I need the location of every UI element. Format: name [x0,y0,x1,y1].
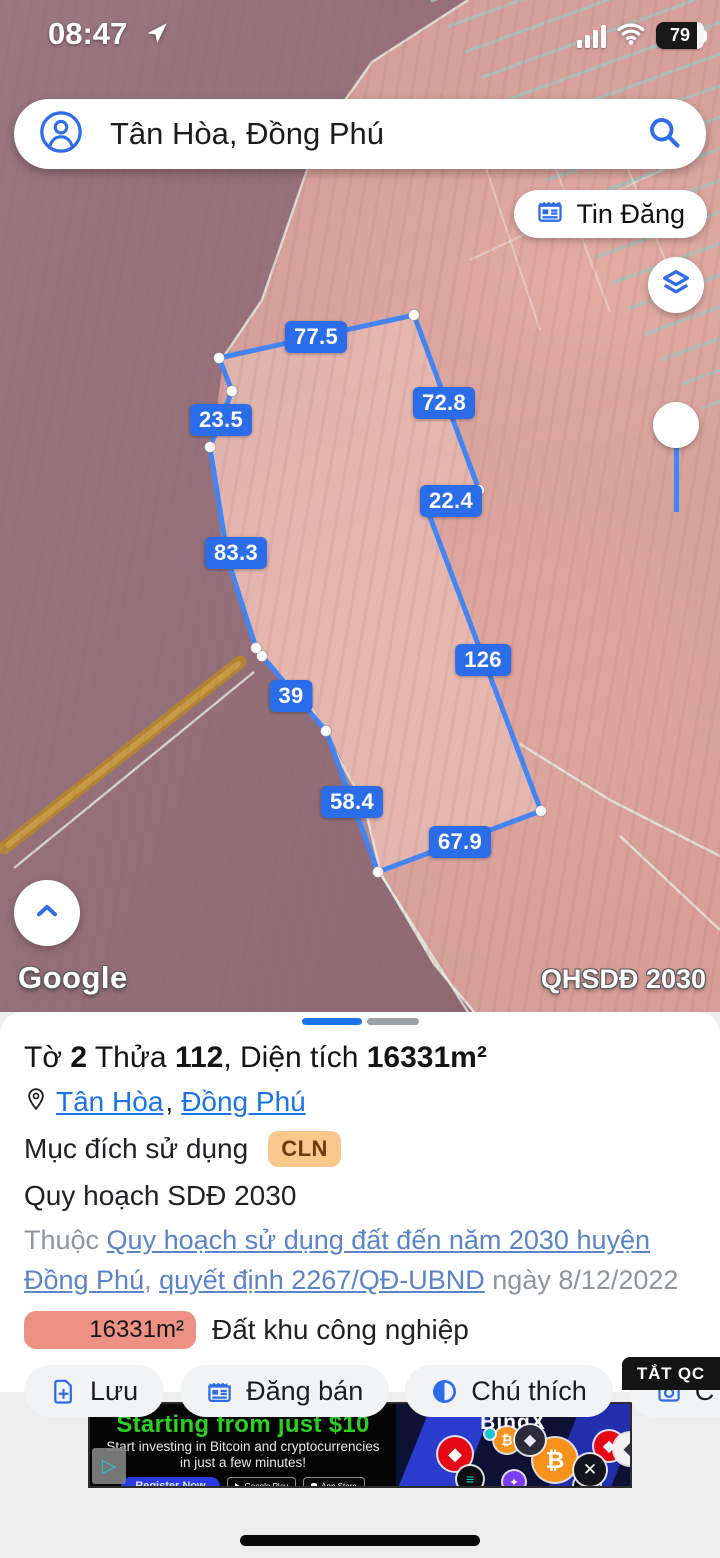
play-store-icon [235,1483,241,1489]
edge-length-label: 126 [455,644,511,676]
belongs-prefix: Thuộc [24,1225,107,1255]
battery-icon: 79 [656,22,704,49]
district-link[interactable]: Đồng Phú [181,1086,306,1118]
home-indicator[interactable] [240,1535,480,1546]
parcel-vertex-dot[interactable] [227,386,238,397]
edge-length-label: 83.3 [205,537,267,569]
crypto-coin-icon: ✕ [574,1454,606,1486]
plan-reference-paragraph: Thuộc Quy hoạch sử dụng đất đến năm 2030… [24,1220,696,1300]
parcel-vertex-dot[interactable] [251,643,262,654]
map-drag-handle[interactable] [653,402,699,448]
pager-dot-inactive[interactable] [367,1018,419,1025]
edge-length-label: 72.8 [413,387,475,419]
ad-subline-2: in just a few minutes! [90,1455,396,1471]
action-button-label: Lưu [90,1376,138,1407]
crypto-coin-icon: ≡ [457,1466,483,1488]
zoning-area-badge: 16331m² [24,1311,196,1349]
map-pin-icon [24,1086,48,1118]
action-button-contrast[interactable]: Chú thích [405,1365,613,1417]
parcel-title-part: 112 [175,1041,223,1074]
edge-length-label: 22.4 [420,485,482,517]
google-logo: Google [18,960,128,996]
search-bar[interactable]: Tân Hòa, Đồng Phú [14,99,706,169]
contrast-icon [431,1378,458,1405]
parcel-title-part: Thửa [87,1041,175,1074]
action-button-label: Chú thích [471,1376,587,1407]
parcel-location-row: Tân Hòa, Đồng Phú [24,1086,720,1118]
file-plus-icon [50,1378,77,1405]
dismiss-ad-button[interactable]: TẮT QC [622,1357,720,1390]
edge-length-label: 58.4 [321,786,383,818]
edge-length-label: 39 [269,680,312,712]
listings-button[interactable]: Tin Đăng [514,190,707,238]
parcel-info-sheet: Tờ 2 Thửa 112, Diện tích 16331m² Tân Hòa… [0,1012,720,1392]
search-input[interactable]: Tân Hòa, Đồng Phú [110,116,646,152]
satellite-map[interactable]: 08:47 79 [0,0,720,1012]
search-icon[interactable] [646,114,682,155]
plan-label: Quy hoạch SDĐ 2030 [24,1180,720,1212]
belongs-suffix: ngày 8/12/2022 [485,1265,679,1295]
zoning-row: 16331m² Đất khu công nghiệp [24,1311,720,1349]
land-purpose-label: Mục đích sử dụng [24,1133,248,1165]
ad-register-button[interactable]: Register Now [121,1477,219,1488]
action-button-file-plus[interactable]: Lưu [24,1365,164,1417]
google-play-badge[interactable]: Google Play [227,1477,297,1488]
collapse-panel-button[interactable] [14,880,80,946]
parcel-title-part: Tờ [24,1041,70,1074]
layers-icon [659,266,693,305]
edge-length-label: 67.9 [429,826,491,858]
edge-length-label: 23.5 [190,404,252,436]
parcel-vertex-dot[interactable] [409,310,420,321]
action-button-listing[interactable]: Đăng bán [180,1365,389,1417]
listing-icon [536,197,564,232]
app-store-badge[interactable]: App Store [303,1477,365,1488]
parcel-title-part: 2 [70,1041,87,1074]
ad-subline-1: Start investing in Bitcoin and cryptocur… [90,1439,396,1455]
action-button-row: LưuĐăng bánChú thíchC [24,1365,720,1417]
account-icon[interactable] [38,109,84,160]
map-layers-button[interactable] [648,257,704,313]
parcel-vertex-dot[interactable] [205,442,216,453]
crypto-coin-icon: ◆ [515,1425,545,1455]
map-overlay-label: QHSDĐ 2030 [541,964,706,995]
listings-button-label: Tin Đăng [576,199,685,230]
listing-icon [206,1378,233,1405]
sheet-pager [0,1012,720,1025]
action-button-label: Đăng bán [246,1376,363,1407]
parcel-title-part: , Diện tích [223,1041,366,1074]
belongs-mid: , [144,1265,159,1295]
edge-length-label: 77.5 [285,321,347,353]
zoning-type-label: Đất khu công nghiệp [212,1314,469,1346]
commune-link[interactable]: Tân Hòa [56,1086,163,1118]
clock: 08:47 [48,16,127,52]
status-bar: 08:47 79 [0,14,720,58]
parcel-vertex-dot[interactable] [536,806,547,817]
land-purpose-row: Mục đích sử dụng CLN [24,1131,720,1167]
parcel-vertex-dot[interactable] [214,353,225,364]
parcel-vertex-dot[interactable] [373,867,384,878]
chevron-up-icon [31,895,63,932]
pager-dot-active[interactable] [302,1018,362,1025]
crypto-coin-icon [485,1429,495,1439]
parcel-title-part: 16331m² [367,1041,487,1074]
location-separator: , [165,1086,173,1118]
crypto-coin-icon: ✦ [503,1471,525,1488]
location-arrow-icon [144,20,170,51]
ad-choices-icon[interactable]: ▷ [92,1448,126,1484]
parcel-title: Tờ 2 Thửa 112, Diện tích 16331m² [24,1040,720,1076]
land-purpose-code-badge[interactable]: CLN [268,1131,341,1167]
app-store-icon [311,1483,317,1488]
wifi-icon [616,18,646,53]
cell-signal-icon [577,24,606,48]
map-drag-handle-stem [674,447,679,512]
decision-link[interactable]: quyết định 2267/QĐ-UBND [159,1265,485,1295]
parcel-vertex-dot[interactable] [321,726,332,737]
